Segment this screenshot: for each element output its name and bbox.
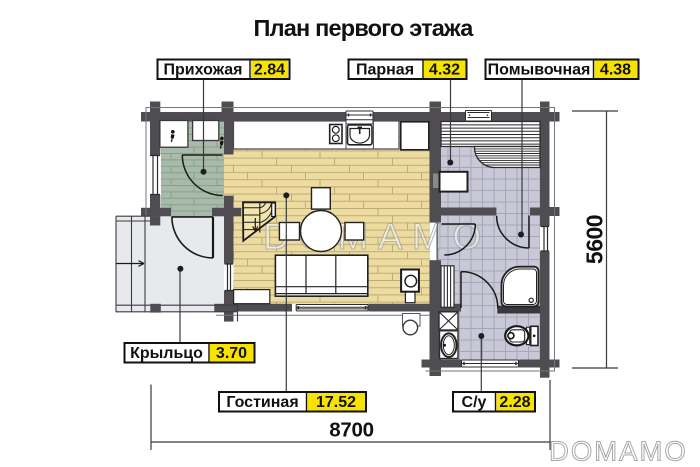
- svg-text:С/у: С/у: [462, 394, 487, 411]
- svg-text:Парная: Парная: [356, 62, 414, 79]
- svg-text:Помывочная: Помывочная: [488, 62, 591, 79]
- svg-text:17.52: 17.52: [316, 394, 356, 411]
- svg-text:План первого этажа: План первого этажа: [254, 15, 475, 41]
- svg-text:Прихожая: Прихожая: [164, 62, 243, 79]
- svg-text:8700: 8700: [329, 419, 373, 442]
- svg-text:4.32: 4.32: [429, 62, 460, 79]
- svg-text:DOMAMO: DOMAMO: [549, 436, 688, 467]
- svg-text:2.28: 2.28: [499, 394, 530, 411]
- svg-text:2.84: 2.84: [254, 62, 285, 79]
- svg-text:Крыльцо: Крыльцо: [130, 345, 203, 362]
- svg-text:5600: 5600: [582, 215, 608, 264]
- svg-text:4.38: 4.38: [600, 62, 631, 79]
- svg-text:Гостиная: Гостиная: [226, 394, 298, 411]
- svg-text:3.70: 3.70: [216, 345, 247, 362]
